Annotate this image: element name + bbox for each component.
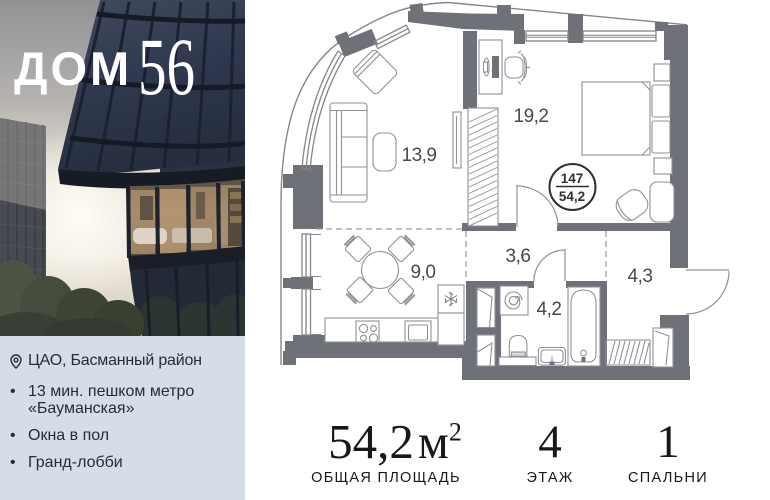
svg-text:9,0: 9,0 [411,262,436,283]
svg-text:4,2: 4,2 [537,299,562,320]
svg-text:19,2: 19,2 [514,106,549,127]
svg-text:13,9: 13,9 [402,145,437,166]
svg-text:4,3: 4,3 [628,266,653,287]
svg-text:54,2: 54,2 [559,189,585,204]
svg-text:3,6: 3,6 [506,246,531,267]
svg-text:147: 147 [561,171,584,186]
